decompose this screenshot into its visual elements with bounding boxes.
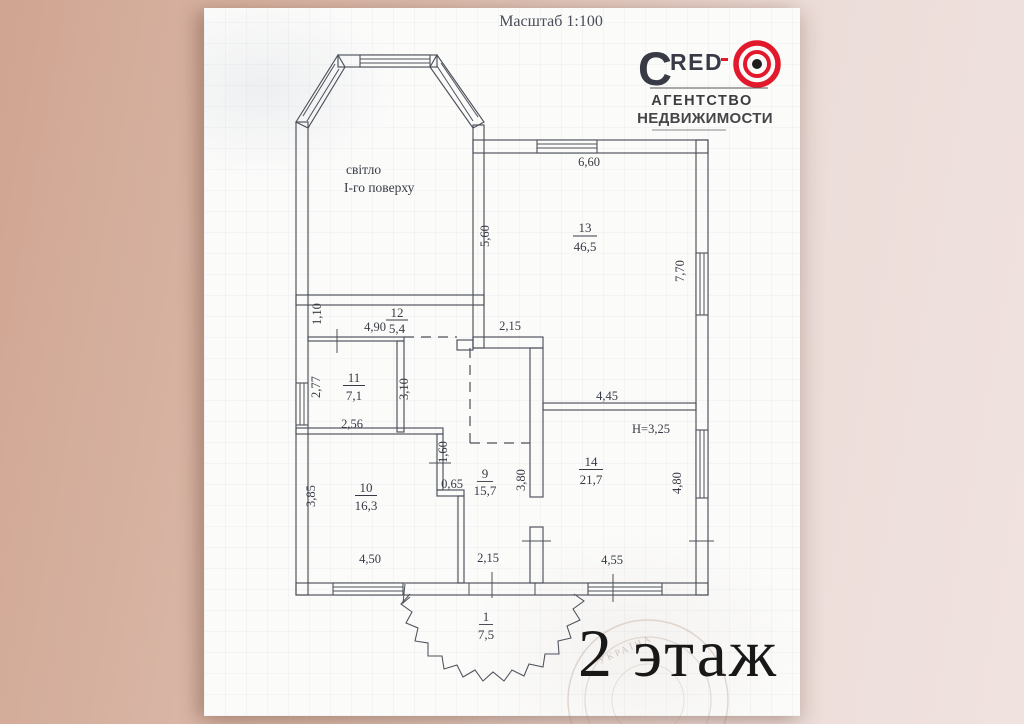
logo-bullseye-icon	[736, 43, 778, 85]
room-9-area: 15,7	[474, 483, 497, 498]
room-14-number: 14	[585, 454, 599, 469]
dim-room10-left: 3,85	[304, 485, 318, 507]
dim-hall-bottom: 2,15	[477, 551, 499, 565]
balcony-area: 7,5	[478, 627, 494, 642]
dim-room14-right: 4,80	[670, 472, 684, 494]
room-11-area: 7,1	[346, 388, 362, 403]
dim-room11-left: 2,77	[309, 376, 323, 398]
void-room-label-line1: світло	[346, 162, 381, 177]
logo-dash	[721, 58, 728, 61]
logo-agency-line2: НЕДВИЖИМОСТИ	[637, 110, 773, 127]
room-14-area: 21,7	[580, 472, 603, 487]
void-room-label-line2: І-го поверху	[344, 180, 415, 195]
dim-room14-bottom: 4,55	[601, 553, 623, 567]
dim-room10-bottom: 4,50	[359, 552, 381, 566]
dim-room14-top: 4,45	[596, 389, 618, 403]
dim-top-width: 6,60	[578, 155, 600, 169]
logo-letter-c: C	[638, 42, 672, 95]
balcony-number: 1	[483, 609, 490, 624]
room-11-number: 11	[348, 370, 361, 385]
floor-plan-drawing: УКРАЇНА Масштаб 1:100 світло І-го поверх…	[0, 0, 1024, 724]
logo-agency-line1: АГЕНТСТВО	[651, 93, 753, 109]
room-12-number: 12	[391, 305, 404, 320]
dim-corridor-width: 4,90	[364, 320, 386, 334]
dim-room11-right: 3,10	[397, 378, 411, 400]
dim-right-upper: 7,70	[673, 260, 687, 282]
dim-room11-bottom: 2,56	[341, 417, 363, 431]
room-9-number: 9	[482, 466, 489, 481]
room-10-area: 16,3	[355, 498, 378, 513]
dimension-ticks-group	[337, 329, 714, 602]
scan-background: УКРАЇНА Масштаб 1:100 світло І-го поверх…	[0, 0, 1024, 724]
room-10-number: 10	[360, 480, 373, 495]
dim-opening-top: 2,15	[499, 319, 521, 333]
dim-left-upper: 5,60	[478, 225, 492, 247]
room-12-area: 5,4	[389, 321, 406, 336]
dim-nook: 1,60	[436, 441, 450, 463]
scale-label: Масштаб 1:100	[499, 13, 603, 30]
floor-title: 2 этаж	[578, 615, 778, 691]
room-13-area: 46,5	[574, 239, 597, 254]
dim-corridor-left: 1,10	[310, 303, 324, 325]
credo-logo: C RED АГЕНТСТВО НЕДВИЖИМОСТИ	[637, 42, 778, 130]
logo-letters-red: RED	[670, 49, 723, 75]
room-13-number: 13	[579, 220, 592, 235]
stair-void-dashed-outline	[404, 337, 530, 443]
dim-hall-right: 3,80	[514, 469, 528, 491]
dim-step: 0,65	[441, 477, 463, 491]
ceiling-height-note: Н=3,25	[632, 422, 670, 436]
